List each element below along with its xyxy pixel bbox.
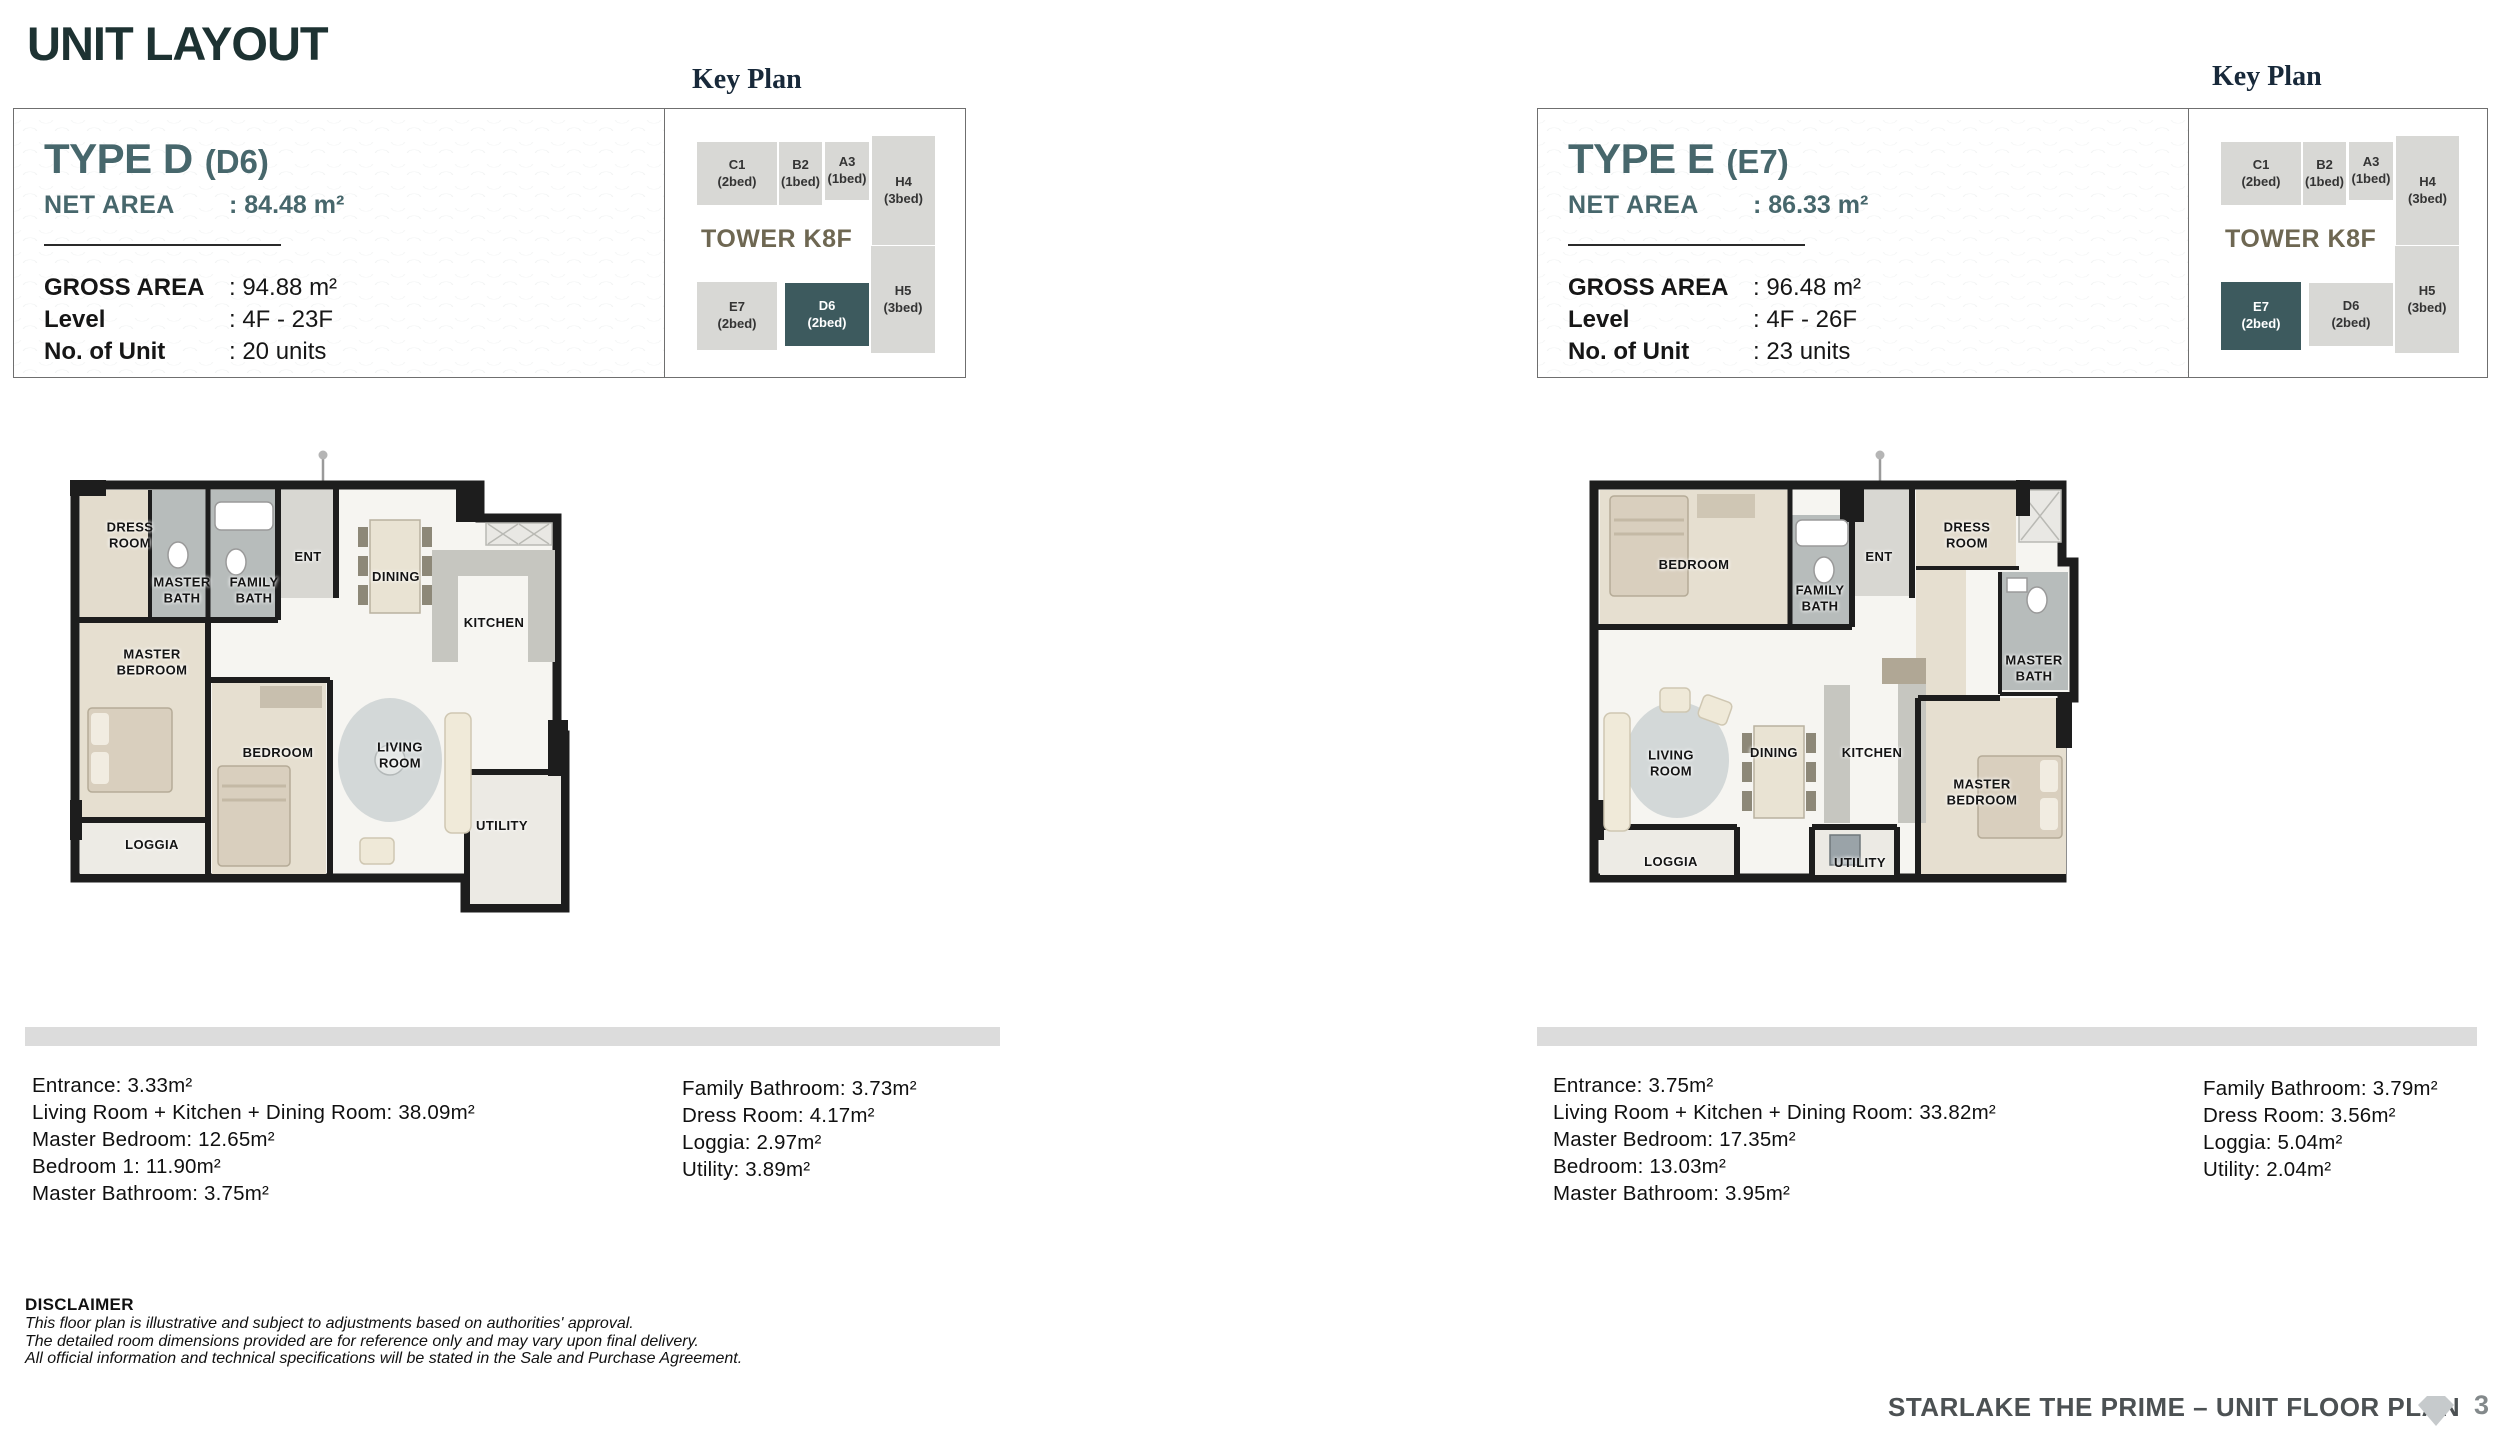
- room-label-master-bedroom: MASTER BEDROOM: [1933, 776, 2031, 807]
- keyplan-tower-label: TOWER K8F: [2225, 225, 2376, 254]
- type-d-area-list-col2: Family Bathroom: 3.73m² Dress Room: 4.17…: [682, 1075, 917, 1183]
- area-item: Living Room + Kitchen + Dining Room: 38.…: [32, 1099, 475, 1126]
- area-item: Family Bathroom: 3.79m²: [2203, 1075, 2438, 1102]
- gross-area-value: : 94.88 m²: [229, 272, 337, 304]
- detail-row: GROSS AREA : 96.48 m²: [1568, 272, 2188, 304]
- area-item: Dress Room: 3.56m²: [2203, 1102, 2438, 1129]
- page-title: UNIT LAYOUT: [27, 16, 328, 71]
- type-d-header-box: TYPE D(D6) NET AREA : 84.48 m² GROSS ARE…: [13, 108, 966, 378]
- type-e-info-panel: TYPE E(E7) NET AREA : 86.33 m² GROSS ARE…: [1538, 109, 2188, 377]
- keyplan-unit-c1: C1(2bed): [697, 142, 777, 205]
- keyplan-unit-b2: B2(1bed): [779, 142, 822, 205]
- room-label-ent: ENT: [294, 549, 321, 565]
- type-d-area-list-col1: Entrance: 3.33m² Living Room + Kitchen +…: [32, 1072, 475, 1207]
- units-value: : 23 units: [1753, 336, 1850, 368]
- units-value: : 20 units: [229, 336, 326, 368]
- type-d-floor-plan-drawing: [60, 430, 680, 930]
- divider-bar-left: [25, 1027, 1000, 1046]
- room-label-family-bath: FAMILY BATH: [223, 574, 285, 605]
- type-d-underline: [44, 244, 281, 246]
- type-e-area-list-col2: Family Bathroom: 3.79m² Dress Room: 3.56…: [2203, 1075, 2438, 1183]
- area-item: Entrance: 3.33m²: [32, 1072, 475, 1099]
- type-e-net-area-label: NET AREA: [1568, 191, 1753, 220]
- gross-area-label: GROSS AREA: [1568, 272, 1753, 304]
- type-e-title: TYPE E: [1568, 135, 1714, 182]
- disclaimer-heading: DISCLAIMER: [25, 1295, 742, 1315]
- type-e-code: (E7): [1726, 143, 1788, 180]
- room-label-master-bath: MASTER BATH: [146, 574, 218, 605]
- keyplan-unit-a3: A3(1bed): [825, 142, 869, 200]
- room-label-living-room: LIVING ROOM: [369, 739, 431, 770]
- area-item: Dress Room: 4.17m²: [682, 1102, 917, 1129]
- keyplan-unit-h4: H4(3bed): [2396, 136, 2459, 245]
- keyplan-unit-d6: D6(2bed): [2309, 283, 2393, 346]
- keyplan-heading-left: Key Plan: [692, 64, 802, 96]
- level-label: Level: [1568, 304, 1753, 336]
- units-label: No. of Unit: [1568, 336, 1753, 368]
- room-label-dress-room: DRESS ROOM: [1936, 519, 1998, 550]
- detail-row: Level : 4F - 26F: [1568, 304, 2188, 336]
- area-item: Utility: 3.89m²: [682, 1156, 917, 1183]
- area-item: Loggia: 2.97m²: [682, 1129, 917, 1156]
- type-d-net-area-row: NET AREA : 84.48 m²: [44, 191, 664, 220]
- type-e-details: GROSS AREA : 96.48 m² Level : 4F - 26F N…: [1568, 272, 2188, 368]
- room-label-living-room: LIVING ROOM: [1640, 747, 1702, 778]
- disclaimer-block: DISCLAIMER This floor plan is illustrati…: [25, 1295, 742, 1368]
- detail-row: GROSS AREA : 94.88 m²: [44, 272, 664, 304]
- divider-bar-right: [1537, 1027, 2477, 1046]
- room-label-bedroom: BEDROOM: [1659, 557, 1730, 573]
- keyplan-heading-right: Key Plan: [2212, 61, 2322, 93]
- type-e-header-box: TYPE E(E7) NET AREA : 86.33 m² GROSS ARE…: [1537, 108, 2488, 378]
- area-item: Master Bedroom: 12.65m²: [32, 1126, 475, 1153]
- room-label-bedroom: BEDROOM: [243, 745, 314, 761]
- diamond-icon: [2418, 1396, 2454, 1431]
- room-label-utility: UTILITY: [476, 818, 528, 834]
- type-e-net-area-value: : 86.33 m²: [1753, 191, 1868, 220]
- keyplan-unit-h5: H5(3bed): [871, 246, 935, 353]
- detail-row: No. of Unit : 20 units: [44, 336, 664, 368]
- area-item: Family Bathroom: 3.73m²: [682, 1075, 917, 1102]
- type-e-underline: [1568, 244, 1805, 246]
- keyplan-unit-c1: C1(2bed): [2221, 142, 2301, 205]
- type-d-code: (D6): [205, 143, 269, 180]
- room-label-loggia: LOGGIA: [125, 837, 179, 853]
- room-label-master-bedroom: MASTER BEDROOM: [106, 646, 198, 677]
- room-label-dress-room: DRESS ROOM: [99, 519, 161, 550]
- area-item: Loggia: 5.04m²: [2203, 1129, 2438, 1156]
- keyplan-tower-label: TOWER K8F: [701, 225, 852, 254]
- level-value: : 4F - 23F: [229, 304, 333, 336]
- type-d-net-area-label: NET AREA: [44, 191, 229, 220]
- footer-title: STARLAKE THE PRIME – UNIT FLOOR PLAN: [1888, 1392, 2460, 1423]
- area-item: Entrance: 3.75m²: [1553, 1072, 1996, 1099]
- area-item: Utility: 2.04m²: [2203, 1156, 2438, 1183]
- room-label-kitchen: KITCHEN: [1842, 745, 1903, 761]
- keyplan-unit-a3: A3(1bed): [2349, 142, 2393, 200]
- keyplan-unit-e7: E7(2bed): [697, 282, 777, 350]
- room-label-dining: DINING: [1750, 745, 1798, 761]
- type-d-title: TYPE D: [44, 135, 193, 182]
- area-item: Master Bedroom: 17.35m²: [1553, 1126, 1996, 1153]
- type-e-floor-plan: BEDROOM FAMILY BATH ENT DRESS ROOM MASTE…: [1582, 430, 2202, 930]
- type-e-net-area-row: NET AREA : 86.33 m²: [1568, 191, 2188, 220]
- type-d-details: GROSS AREA : 94.88 m² Level : 4F - 23F N…: [44, 272, 664, 368]
- room-label-ent: ENT: [1865, 549, 1892, 565]
- room-label-utility: UTILITY: [1834, 855, 1886, 871]
- type-e-title-row: TYPE E(E7): [1568, 135, 2188, 183]
- type-d-title-row: TYPE D(D6): [44, 135, 664, 183]
- type-e-keyplan: C1(2bed) B2(1bed) A3(1bed) H4(3bed) TOWE…: [2188, 109, 2487, 377]
- disclaimer-line: This floor plan is illustrative and subj…: [25, 1315, 742, 1333]
- units-label: No. of Unit: [44, 336, 229, 368]
- disclaimer-line: All official information and technical s…: [25, 1350, 742, 1368]
- area-item: Master Bathroom: 3.75m²: [32, 1180, 475, 1207]
- keyplan-unit-e7-highlighted: E7(2bed): [2221, 282, 2301, 350]
- type-d-keyplan: C1(2bed) B2(1bed) A3(1bed) H4(3bed) TOWE…: [664, 109, 965, 377]
- room-label-family-bath: FAMILY BATH: [1789, 582, 1851, 613]
- room-label-loggia: LOGGIA: [1644, 854, 1698, 870]
- disclaimer-line: The detailed room dimensions provided ar…: [25, 1333, 742, 1351]
- room-label-master-bath: MASTER BATH: [1998, 652, 2070, 683]
- level-value: : 4F - 26F: [1753, 304, 1857, 336]
- type-d-floor-plan: DRESS ROOM MASTER BATH FAMILY BATH ENT D…: [60, 430, 680, 930]
- keyplan-unit-b2: B2(1bed): [2303, 142, 2346, 205]
- keyplan-unit-d6-highlighted: D6(2bed): [785, 283, 869, 346]
- room-label-dining: DINING: [372, 569, 420, 585]
- page-number: 3: [2474, 1390, 2489, 1421]
- keyplan-unit-h4: H4(3bed): [872, 136, 935, 245]
- type-d-info-panel: TYPE D(D6) NET AREA : 84.48 m² GROSS ARE…: [14, 109, 664, 377]
- gross-area-label: GROSS AREA: [44, 272, 229, 304]
- detail-row: Level : 4F - 23F: [44, 304, 664, 336]
- area-item: Living Room + Kitchen + Dining Room: 33.…: [1553, 1099, 1996, 1126]
- keyplan-unit-h5: H5(3bed): [2395, 246, 2459, 353]
- detail-row: No. of Unit : 23 units: [1568, 336, 2188, 368]
- room-label-kitchen: KITCHEN: [464, 615, 525, 631]
- gross-area-value: : 96.48 m²: [1753, 272, 1861, 304]
- level-label: Level: [44, 304, 229, 336]
- area-item: Bedroom: 13.03m²: [1553, 1153, 1996, 1180]
- type-e-area-list-col1: Entrance: 3.75m² Living Room + Kitchen +…: [1553, 1072, 1996, 1207]
- area-item: Master Bathroom: 3.95m²: [1553, 1180, 1996, 1207]
- area-item: Bedroom 1: 11.90m²: [32, 1153, 475, 1180]
- type-d-net-area-value: : 84.48 m²: [229, 191, 344, 220]
